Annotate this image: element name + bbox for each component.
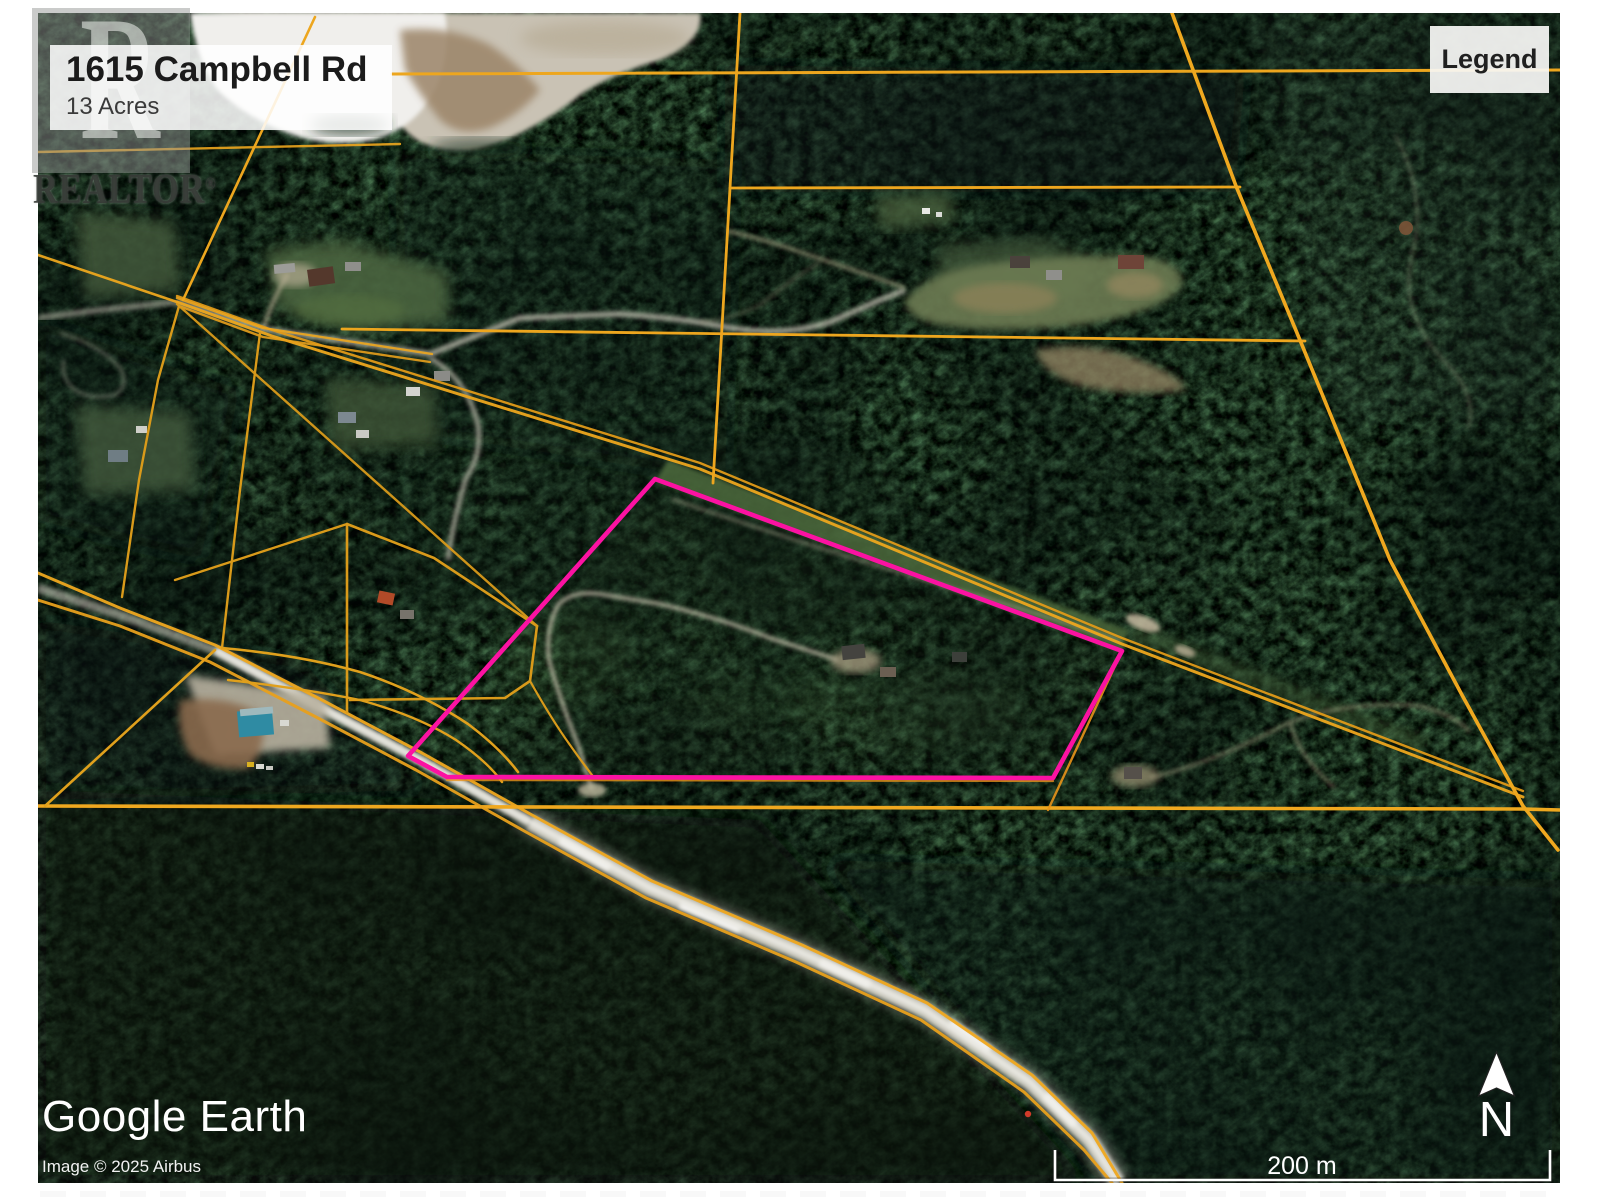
svg-text:200 m: 200 m (1267, 1152, 1336, 1180)
svg-text:N: N (1479, 1093, 1514, 1145)
